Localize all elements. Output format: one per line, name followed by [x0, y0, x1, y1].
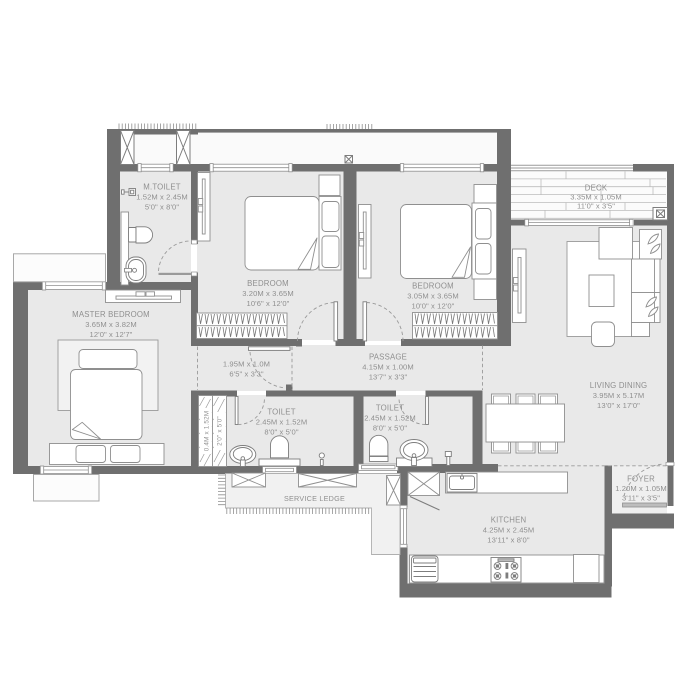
- svg-text:4.25M x 2.45M: 4.25M x 2.45M: [483, 526, 535, 535]
- svg-text:13'11" x 8'0": 13'11" x 8'0": [487, 536, 530, 545]
- svg-text:4.15M x 1.00M: 4.15M x 1.00M: [362, 363, 414, 372]
- svg-text:10'6" x 12'0": 10'6" x 12'0": [247, 299, 290, 308]
- svg-text:PASSAGE: PASSAGE: [369, 353, 407, 362]
- svg-text:2.45M x 1.52M: 2.45M x 1.52M: [256, 418, 308, 427]
- svg-text:1.52M x 2.45M: 1.52M x 2.45M: [136, 193, 188, 202]
- svg-text:13'7" x 3'3": 13'7" x 3'3": [369, 373, 408, 382]
- svg-text:3.05M x 3.65M: 3.05M x 3.65M: [407, 292, 459, 301]
- svg-text:1.20M x 1.05M: 1.20M x 1.05M: [615, 484, 667, 493]
- svg-text:13'0" x 17'0": 13'0" x 17'0": [597, 401, 640, 410]
- svg-text:SERVICE LEDGE: SERVICE LEDGE: [284, 494, 345, 503]
- svg-text:1.95M x 1.0M: 1.95M x 1.0M: [223, 360, 270, 369]
- svg-text:6'5" x 3'3": 6'5" x 3'3": [229, 370, 264, 379]
- svg-text:M.TOILET: M.TOILET: [143, 183, 180, 192]
- svg-text:0.4M x 1.52M: 0.4M x 1.52M: [204, 411, 211, 452]
- svg-text:KITCHEN: KITCHEN: [491, 516, 527, 525]
- svg-text:3.65M x 3.82M: 3.65M x 3.82M: [85, 320, 137, 329]
- svg-text:TOILET: TOILET: [376, 404, 404, 413]
- svg-text:FOYER: FOYER: [627, 475, 655, 484]
- svg-text:2.45M x 1.52M: 2.45M x 1.52M: [364, 414, 416, 423]
- svg-text:3.35M x 1.05M: 3.35M x 1.05M: [570, 193, 622, 202]
- svg-text:8'0" x 5'0": 8'0" x 5'0": [264, 428, 299, 437]
- svg-text:MASTER BEDROOM: MASTER BEDROOM: [72, 310, 150, 319]
- svg-text:2'0" x 5'0": 2'0" x 5'0": [217, 416, 224, 446]
- svg-text:3.95M x 5.17M: 3.95M x 5.17M: [593, 391, 645, 400]
- svg-text:BEDROOM: BEDROOM: [412, 282, 454, 291]
- svg-text:3'11" x 3'5": 3'11" x 3'5": [622, 494, 660, 503]
- svg-text:11'0" x 3'5": 11'0" x 3'5": [577, 202, 615, 211]
- svg-text:TOILET: TOILET: [267, 408, 295, 417]
- svg-text:DECK: DECK: [585, 184, 608, 193]
- svg-text:10'0" x 12'0": 10'0" x 12'0": [412, 302, 455, 311]
- svg-text:12'0" x 12'7": 12'0" x 12'7": [90, 330, 133, 339]
- svg-text:LIVING DINING: LIVING DINING: [590, 381, 648, 390]
- svg-text:3.20M x 3.65M: 3.20M x 3.65M: [242, 289, 294, 298]
- svg-text:5'0" x 8'0": 5'0" x 8'0": [145, 203, 180, 212]
- svg-text:BEDROOM: BEDROOM: [247, 279, 289, 288]
- svg-text:8'0" x 5'0": 8'0" x 5'0": [373, 424, 408, 433]
